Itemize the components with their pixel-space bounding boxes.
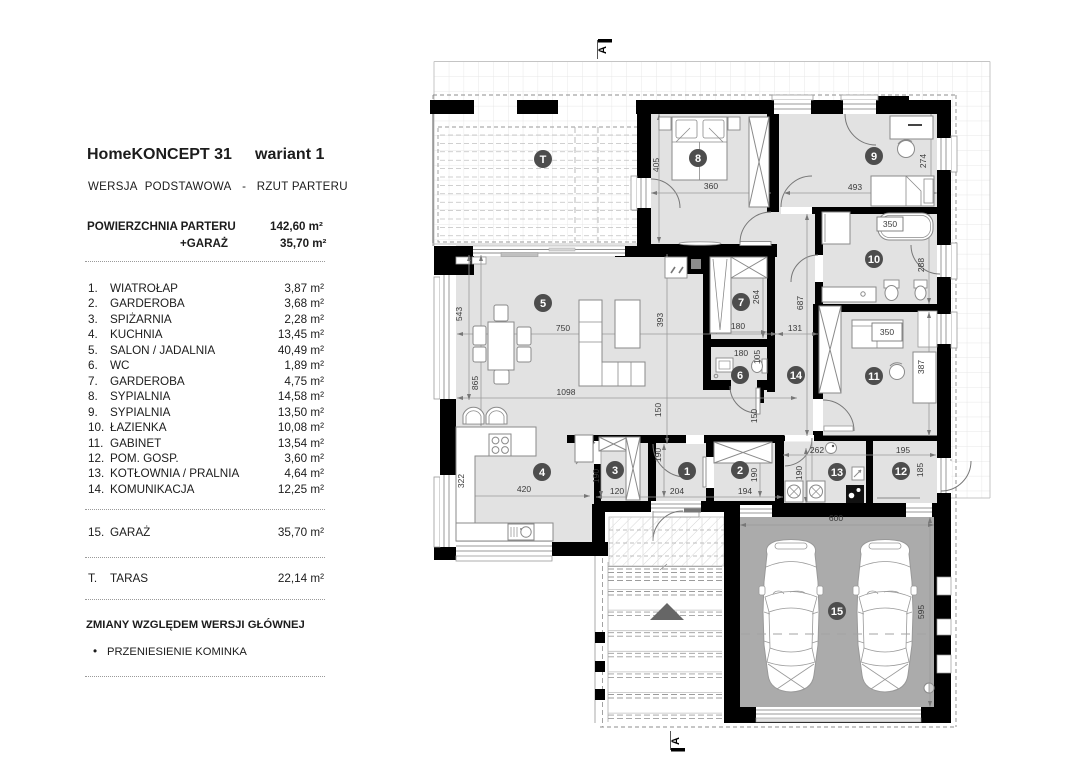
svg-text:274: 274 <box>918 154 928 168</box>
svg-text:185: 185 <box>915 463 925 477</box>
svg-text:13: 13 <box>831 467 843 479</box>
svg-text:15: 15 <box>831 606 843 618</box>
svg-text:288: 288 <box>916 258 926 272</box>
svg-text:11: 11 <box>868 371 880 383</box>
svg-text:264: 264 <box>751 290 761 304</box>
svg-text:10: 10 <box>868 254 880 266</box>
svg-text:194: 194 <box>738 486 752 496</box>
svg-text:150: 150 <box>749 409 759 423</box>
svg-text:195: 195 <box>896 445 910 455</box>
svg-text:7: 7 <box>738 297 744 309</box>
svg-text:190: 190 <box>591 469 601 483</box>
svg-text:190: 190 <box>653 448 663 462</box>
svg-text:262: 262 <box>810 445 824 455</box>
svg-text:687: 687 <box>795 296 805 310</box>
svg-text:204: 204 <box>670 486 684 496</box>
svg-text:150: 150 <box>653 403 663 417</box>
svg-text:3: 3 <box>612 465 618 477</box>
svg-text:387: 387 <box>916 360 926 374</box>
svg-text:190: 190 <box>794 466 804 480</box>
svg-text:1: 1 <box>684 466 690 478</box>
svg-text:14: 14 <box>790 370 803 382</box>
svg-text:420: 420 <box>517 484 531 494</box>
svg-text:105: 105 <box>752 350 762 364</box>
svg-text:1098: 1098 <box>557 387 576 397</box>
svg-text:180: 180 <box>734 348 748 358</box>
svg-text:9: 9 <box>871 151 877 163</box>
svg-text:131: 131 <box>788 323 802 333</box>
svg-text:T: T <box>540 154 547 166</box>
svg-text:120: 120 <box>610 486 624 496</box>
svg-text:322: 322 <box>456 474 466 488</box>
svg-text:600: 600 <box>829 513 843 523</box>
svg-text:493: 493 <box>848 182 862 192</box>
svg-text:6: 6 <box>737 370 743 382</box>
svg-text:180: 180 <box>731 321 745 331</box>
svg-text:A: A <box>670 737 682 745</box>
svg-text:A: A <box>597 46 609 54</box>
svg-text:350: 350 <box>880 327 894 337</box>
svg-text:2: 2 <box>737 465 743 477</box>
svg-text:543: 543 <box>454 307 464 321</box>
svg-text:190: 190 <box>749 468 759 482</box>
svg-text:5: 5 <box>540 298 546 310</box>
svg-text:8: 8 <box>695 153 701 165</box>
svg-text:405: 405 <box>651 158 661 172</box>
svg-text:865: 865 <box>470 376 480 390</box>
svg-text:350: 350 <box>883 219 897 229</box>
svg-text:750: 750 <box>556 323 570 333</box>
svg-text:360: 360 <box>704 181 718 191</box>
svg-text:12: 12 <box>895 466 907 478</box>
svg-text:393: 393 <box>655 313 665 327</box>
svg-text:4: 4 <box>539 467 546 479</box>
svg-text:595: 595 <box>916 605 926 619</box>
